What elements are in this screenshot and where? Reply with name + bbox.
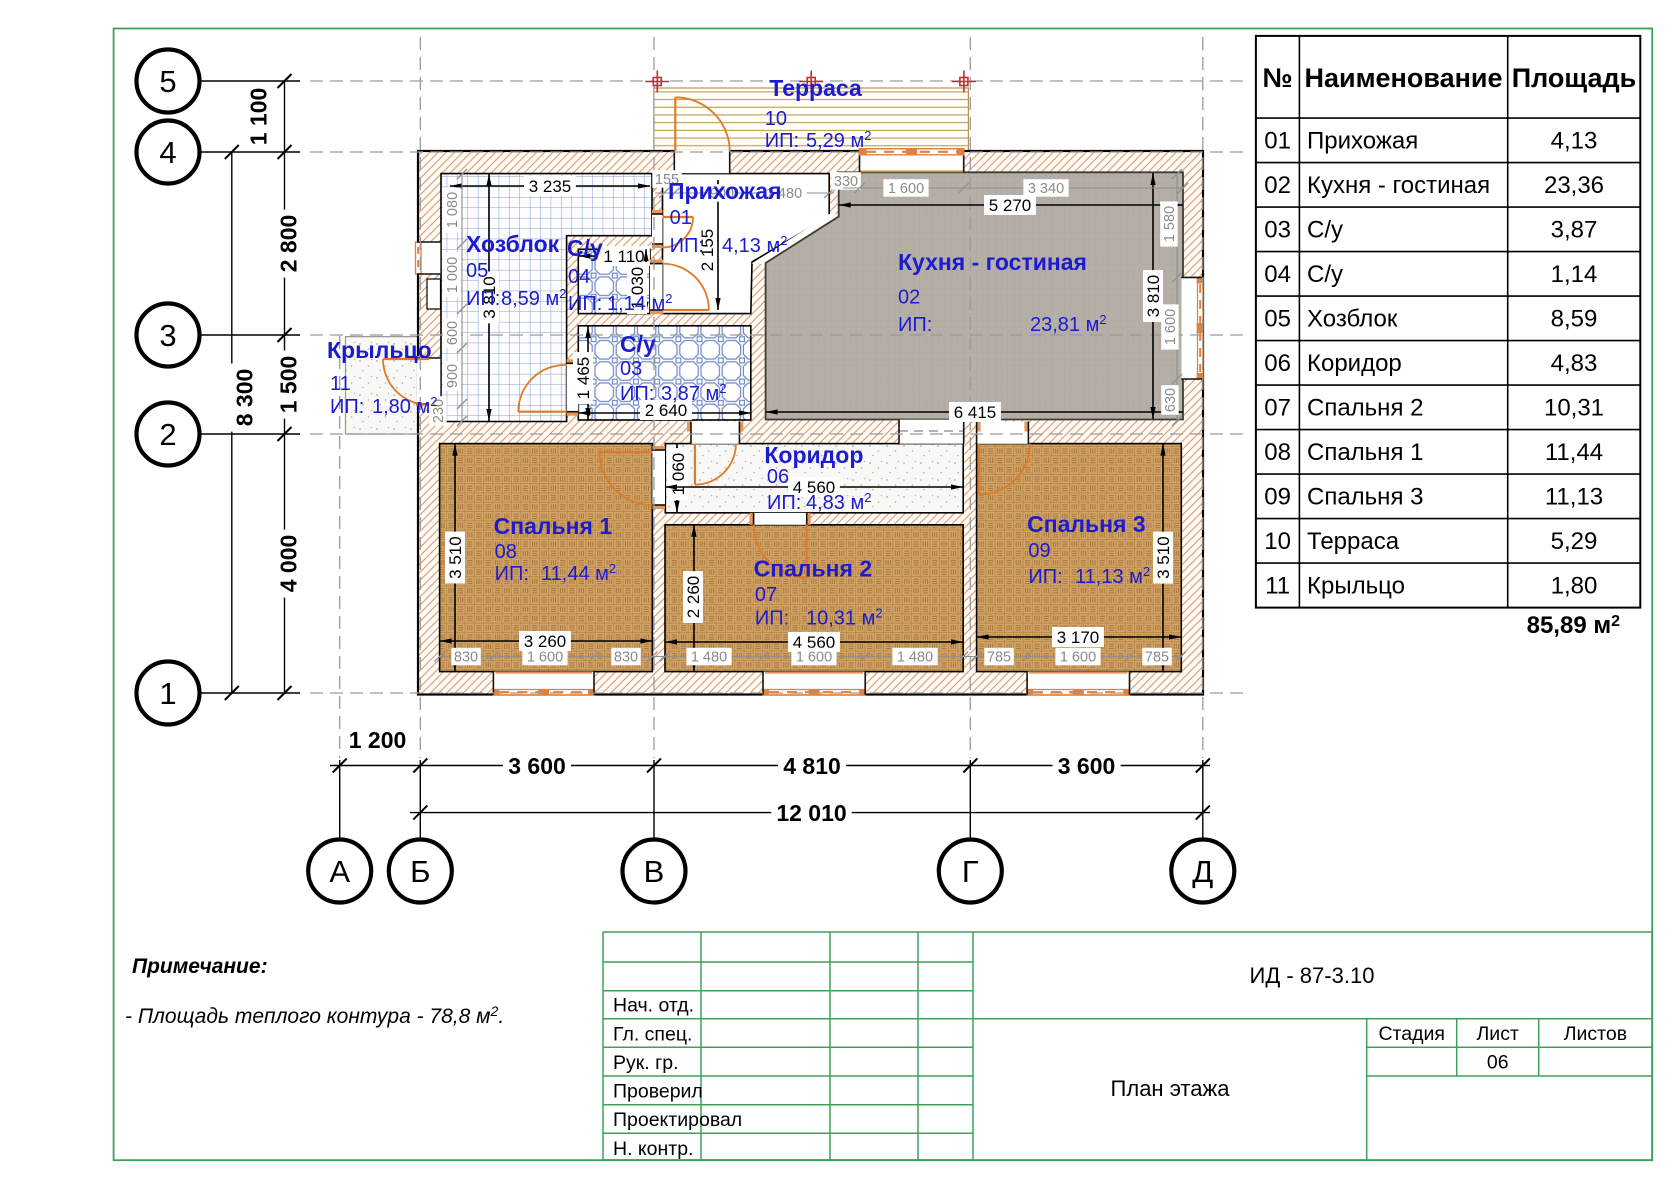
svg-text:1 480: 1 480	[897, 650, 933, 666]
svg-text:Коридор: Коридор	[764, 442, 863, 468]
svg-text:Спальня 3: Спальня 3	[1027, 511, 1146, 537]
svg-text:10,31 м2: 10,31 м2	[806, 606, 883, 630]
svg-text:Спальня 3: Спальня 3	[1307, 484, 1423, 511]
svg-text:8,59 м2: 8,59 м2	[501, 286, 566, 310]
svg-text:1,80 м2: 1,80 м2	[372, 394, 437, 418]
svg-text:4: 4	[159, 135, 176, 170]
svg-text:1 600: 1 600	[1163, 309, 1179, 345]
svg-text:11,13: 11,13	[1545, 484, 1603, 511]
svg-text:Лист: Лист	[1477, 1023, 1519, 1045]
svg-text:4,13: 4,13	[1551, 128, 1598, 155]
svg-text:Листов: Листов	[1564, 1023, 1627, 1045]
svg-text:1 465: 1 465	[574, 357, 593, 400]
svg-text:6 415: 6 415	[954, 403, 997, 422]
svg-text:8 300: 8 300	[231, 369, 257, 427]
svg-text:11,44: 11,44	[1545, 439, 1603, 466]
svg-text:05: 05	[1264, 306, 1291, 333]
svg-text:06: 06	[1264, 350, 1291, 377]
svg-text:Рук. гр.: Рук. гр.	[613, 1052, 679, 1074]
svg-text:1 200: 1 200	[349, 727, 407, 753]
svg-text:3 340: 3 340	[1028, 181, 1064, 197]
svg-text:3,87: 3,87	[1551, 217, 1598, 244]
svg-text:09: 09	[1264, 484, 1291, 511]
svg-text:ИП:: ИП:	[765, 130, 799, 152]
svg-text:Д: Д	[1192, 854, 1213, 889]
svg-text:04: 04	[1264, 261, 1291, 288]
svg-text:С/у: С/у	[567, 235, 603, 261]
svg-text:ИП:: ИП:	[620, 383, 654, 405]
svg-text:Хозблок: Хозблок	[1307, 306, 1398, 333]
svg-text:Терраса: Терраса	[1307, 528, 1400, 555]
svg-text:1,14 м2: 1,14 м2	[607, 291, 672, 315]
svg-text:1 600: 1 600	[527, 650, 563, 666]
svg-text:В: В	[644, 854, 665, 889]
svg-text:Кухня - гостиная: Кухня - гостиная	[1307, 172, 1490, 199]
svg-text:830: 830	[454, 650, 478, 666]
svg-text:900: 900	[445, 364, 461, 388]
svg-text:Крыльцо: Крыльцо	[327, 337, 432, 363]
svg-text:1 500: 1 500	[275, 356, 301, 414]
svg-text:23,36: 23,36	[1544, 172, 1604, 199]
svg-text:Спальня 2: Спальня 2	[1307, 395, 1423, 422]
svg-text:Терраса: Терраса	[769, 75, 862, 101]
svg-text:Спальня 1: Спальня 1	[1307, 439, 1423, 466]
svg-text:03: 03	[620, 358, 642, 380]
svg-text:А: А	[329, 854, 350, 889]
svg-text:Проверил: Проверил	[613, 1081, 703, 1103]
svg-text:08: 08	[1264, 439, 1291, 466]
svg-text:ИП:: ИП:	[466, 288, 500, 310]
svg-text:04: 04	[568, 266, 590, 288]
svg-text:Коридор: Коридор	[1307, 350, 1402, 377]
svg-text:ИП:: ИП:	[670, 235, 704, 257]
svg-text:09: 09	[1028, 540, 1050, 562]
svg-text:Спальня 2: Спальня 2	[754, 556, 873, 582]
svg-text:10: 10	[1264, 528, 1291, 555]
svg-text:23,81 м2: 23,81 м2	[1030, 312, 1107, 336]
svg-text:План этажа: План этажа	[1111, 1076, 1231, 1101]
svg-text:01: 01	[1264, 128, 1291, 155]
svg-text:4,83 м2: 4,83 м2	[806, 490, 871, 514]
svg-text:08: 08	[495, 541, 517, 563]
svg-text:06: 06	[767, 466, 789, 488]
svg-text:03: 03	[1264, 217, 1291, 244]
svg-text:830: 830	[614, 650, 638, 666]
svg-text:Крыльцо: Крыльцо	[1307, 573, 1405, 600]
svg-text:Прихожая: Прихожая	[1307, 128, 1418, 155]
svg-text:ИП:: ИП:	[755, 608, 789, 630]
svg-text:Хозблок: Хозблок	[466, 231, 560, 257]
svg-text:11,13 м2: 11,13 м2	[1075, 564, 1150, 588]
svg-text:ИП:: ИП:	[568, 293, 602, 315]
svg-text:07: 07	[755, 584, 777, 606]
svg-text:1 100: 1 100	[245, 88, 271, 146]
svg-text:10,31: 10,31	[1544, 395, 1604, 422]
svg-text:5 270: 5 270	[989, 196, 1032, 215]
svg-text:3 600: 3 600	[1058, 753, 1116, 779]
svg-text:4,83: 4,83	[1551, 350, 1598, 377]
svg-text:ИП:: ИП:	[495, 563, 529, 585]
svg-text:1 000: 1 000	[445, 257, 461, 293]
svg-text:5,29: 5,29	[1551, 528, 1598, 555]
svg-text:10: 10	[765, 108, 787, 130]
svg-text:ИП:: ИП:	[330, 396, 364, 418]
svg-text:№: №	[1263, 63, 1293, 93]
svg-text:02: 02	[898, 287, 920, 309]
svg-text:3 810: 3 810	[1144, 275, 1163, 318]
svg-text:5: 5	[159, 64, 176, 99]
svg-text:11: 11	[330, 373, 351, 395]
svg-text:4 000: 4 000	[275, 535, 301, 593]
svg-text:1 480: 1 480	[691, 650, 727, 666]
svg-text:2 260: 2 260	[684, 576, 703, 619]
svg-text:ИП:: ИП:	[1028, 566, 1062, 588]
svg-text:12 010: 12 010	[776, 800, 846, 826]
svg-text:Б: Б	[410, 854, 430, 889]
svg-text:1,14: 1,14	[1551, 261, 1598, 288]
svg-text:85,89 м2: 85,89 м2	[1527, 612, 1620, 639]
svg-text:Примечание:: Примечание:	[132, 955, 268, 978]
svg-text:Проектировал: Проектировал	[613, 1109, 742, 1131]
svg-text:3 600: 3 600	[508, 753, 566, 779]
svg-text:3 510: 3 510	[446, 536, 465, 579]
svg-text:Спальня 1: Спальня 1	[494, 513, 613, 539]
svg-text:1 580: 1 580	[1162, 206, 1178, 242]
svg-text:2 800: 2 800	[275, 215, 301, 273]
svg-text:3 170: 3 170	[1057, 628, 1100, 647]
svg-text:11,44 м2: 11,44 м2	[541, 561, 616, 585]
svg-text:Нач. отд.: Нач. отд.	[613, 995, 694, 1017]
svg-text:Прихожая: Прихожая	[668, 178, 781, 204]
svg-text:3,87 м2: 3,87 м2	[661, 381, 726, 405]
svg-text:Кухня - гостиная: Кухня - гостиная	[898, 249, 1087, 275]
svg-text:ИП:: ИП:	[898, 314, 932, 336]
svg-text:4,13 м2: 4,13 м2	[722, 233, 787, 257]
svg-text:600: 600	[445, 321, 461, 345]
svg-text:1 080: 1 080	[445, 192, 461, 228]
svg-text:Г: Г	[962, 854, 979, 889]
svg-text:5,29 м2: 5,29 м2	[806, 128, 871, 152]
svg-text:С/у: С/у	[1307, 261, 1343, 288]
svg-text:С/у: С/у	[1307, 217, 1343, 244]
svg-text:11: 11	[1265, 573, 1290, 600]
svg-text:- Площадь теплого контура -: - Площадь теплого контура - 78,8 м2.	[125, 1003, 504, 1028]
svg-text:ИП:: ИП:	[767, 492, 801, 514]
svg-text:1 600: 1 600	[888, 181, 924, 197]
svg-text:07: 07	[1264, 395, 1291, 422]
svg-text:785: 785	[987, 650, 1011, 666]
svg-text:1,80: 1,80	[1551, 573, 1598, 600]
svg-text:06: 06	[1487, 1052, 1509, 1074]
svg-text:3: 3	[159, 318, 176, 353]
svg-text:Стадия: Стадия	[1378, 1023, 1444, 1045]
svg-text:4 810: 4 810	[783, 753, 841, 779]
svg-text:3 510: 3 510	[1154, 536, 1173, 579]
svg-text:Наименование: Наименование	[1304, 63, 1502, 93]
svg-text:8,59: 8,59	[1551, 306, 1598, 333]
svg-text:1 600: 1 600	[796, 650, 832, 666]
svg-text:01: 01	[670, 207, 692, 229]
svg-text:05: 05	[466, 260, 488, 282]
svg-text:Гл. спец.: Гл. спец.	[613, 1023, 692, 1045]
svg-text:2: 2	[159, 417, 176, 452]
svg-text:Площадь: Площадь	[1512, 63, 1637, 93]
svg-text:3 235: 3 235	[529, 177, 572, 196]
svg-text:ИД - 87-3.10: ИД - 87-3.10	[1250, 963, 1375, 988]
svg-text:Н. контр.: Н. контр.	[613, 1138, 693, 1160]
svg-text:785: 785	[1145, 650, 1169, 666]
svg-text:1: 1	[159, 676, 176, 711]
svg-text:С/у: С/у	[620, 331, 656, 357]
svg-text:02: 02	[1264, 172, 1291, 199]
svg-text:1 600: 1 600	[1060, 650, 1096, 666]
svg-text:1 060: 1 060	[669, 453, 688, 496]
svg-text:630: 630	[1163, 388, 1179, 412]
